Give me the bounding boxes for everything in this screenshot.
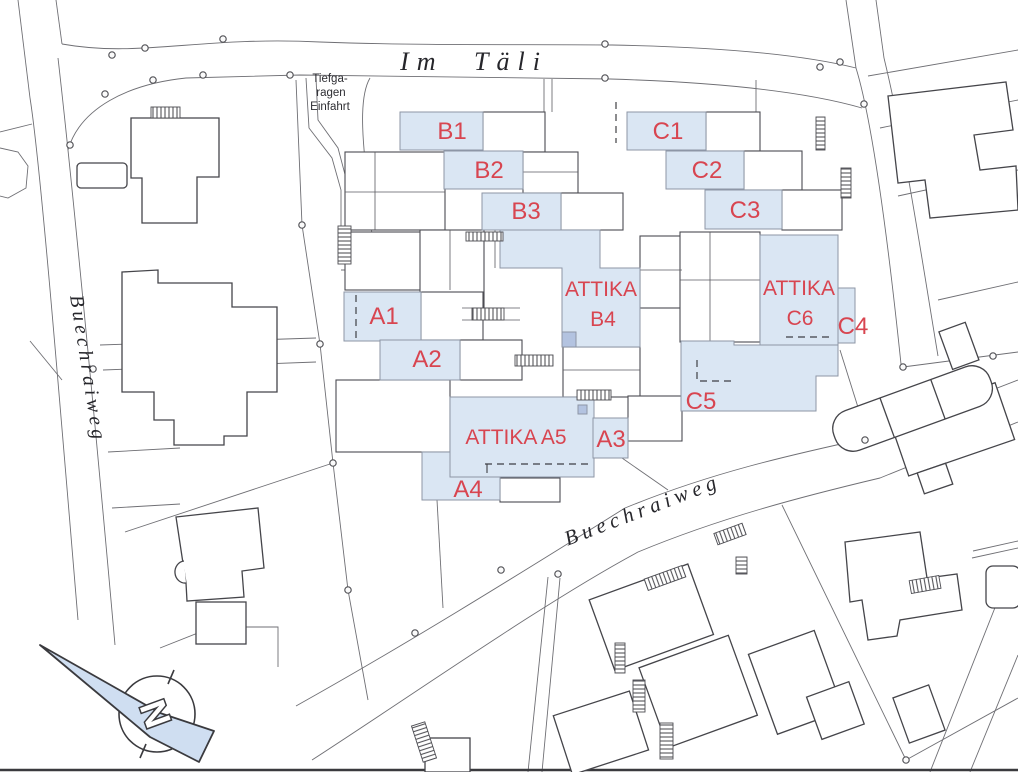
unit-b4-core: [562, 332, 576, 347]
unit-c6-label-line1: ATTIKA: [763, 277, 835, 300]
garage-note-line1: Tiefga-: [312, 73, 348, 85]
neighbor-house-southeast-annex: [893, 685, 945, 743]
north-arrow-needle: [40, 645, 214, 762]
garage-note-line3: Einfahrt: [310, 101, 350, 113]
neighbor-house-northwest: [131, 118, 219, 223]
compass-tick-ne: [168, 670, 174, 684]
unit-b3-label: B3: [511, 198, 540, 225]
site-plan-drawing: B1 B2 B3 ATTIKA B4 C1 C2 C3 ATTIKA C6 C4…: [0, 0, 1018, 772]
unit-c5-label: C5: [686, 388, 717, 415]
unit-a3-label: A3: [596, 426, 625, 453]
street-im-taeli-label: Im Täli: [399, 47, 548, 76]
north-arrow: N: [40, 645, 214, 762]
neighbor-house-northeast: [888, 82, 1018, 218]
unit-a4-label: A4: [453, 476, 482, 503]
street-buechraiweg-south-label: Buechraiweg: [561, 469, 724, 551]
unit-a2-label: A2: [412, 346, 441, 373]
street-buechraiweg-west-label: Buechraiweg: [65, 293, 110, 444]
compass-tick-sw: [140, 744, 146, 758]
unit-b4-label-line1: ATTIKA: [565, 278, 637, 301]
unit-a5-label: ATTIKA A5: [465, 426, 566, 449]
unit-a5-core: [578, 405, 587, 414]
neighbor-shed-southwest: [196, 602, 246, 644]
unit-c1-label: C1: [653, 118, 684, 145]
neighbor-annex-northwest: [77, 163, 127, 188]
unit-b1-label: B1: [437, 118, 466, 145]
unit-c6-label-line2: C6: [787, 307, 814, 330]
garage-entrance-note: Tiefga- ragen Einfahrt: [310, 73, 350, 113]
unit-c3-label: C3: [730, 197, 761, 224]
neighbor-pool: [986, 566, 1018, 608]
unit-c2-label: C2: [692, 157, 723, 184]
neighbor-garage-annex: [939, 322, 979, 369]
garage-note-line2: ragen: [316, 87, 345, 99]
unit-a1-label: A1: [369, 303, 398, 330]
neighbor-house-southeast: [845, 532, 962, 640]
site-plan-page: B1 B2 B3 ATTIKA B4 C1 C2 C3 ATTIKA C6 C4…: [0, 0, 1018, 772]
neighbor-house-southwest: [176, 508, 264, 601]
unit-c4-label: C4: [838, 313, 869, 340]
neighbor-house-west: [122, 270, 277, 445]
unit-b2-label: B2: [474, 157, 503, 184]
unit-b4-label-line2: B4: [590, 308, 616, 331]
